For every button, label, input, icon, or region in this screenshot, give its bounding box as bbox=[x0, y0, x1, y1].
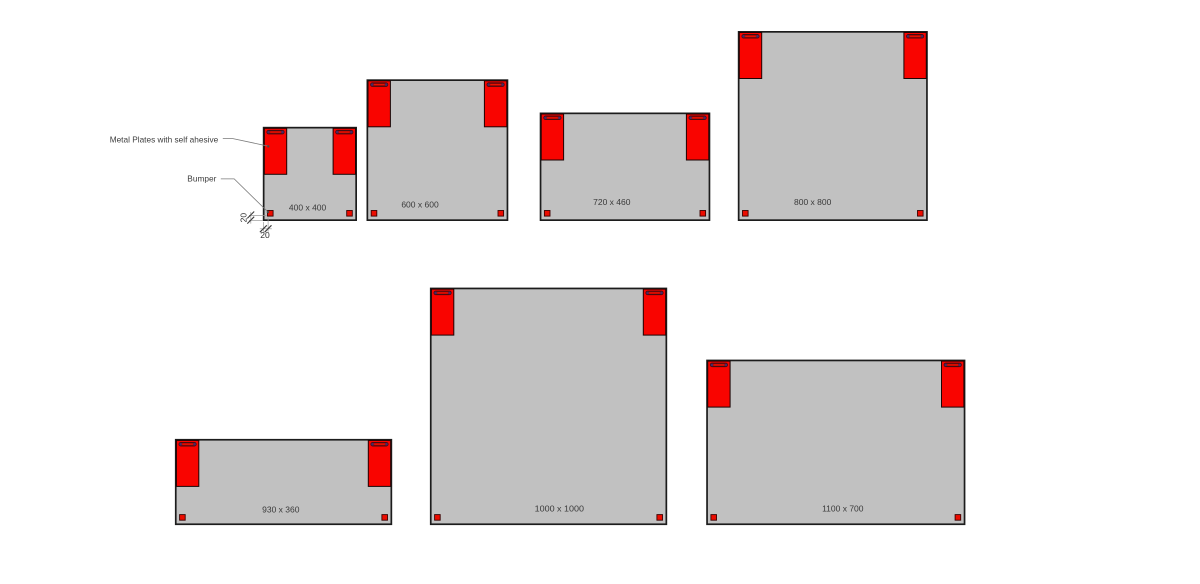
svg-text:800 x 800: 800 x 800 bbox=[794, 197, 832, 207]
svg-text:Bumper: Bumper bbox=[187, 174, 216, 184]
svg-text:930 x 360: 930 x 360 bbox=[262, 505, 300, 515]
svg-text:400 x 400: 400 x 400 bbox=[289, 202, 327, 212]
svg-text:720 x 460: 720 x 460 bbox=[593, 197, 631, 207]
svg-text:600 x 600: 600 x 600 bbox=[401, 200, 439, 210]
svg-text:20: 20 bbox=[260, 230, 270, 240]
svg-text:20: 20 bbox=[239, 213, 249, 223]
svg-text:1000 x 1000: 1000 x 1000 bbox=[535, 503, 585, 513]
svg-text:1100 x 700: 1100 x 700 bbox=[822, 503, 864, 513]
svg-text:Metal Plates with self ahesive: Metal Plates with self ahesive bbox=[110, 135, 219, 145]
